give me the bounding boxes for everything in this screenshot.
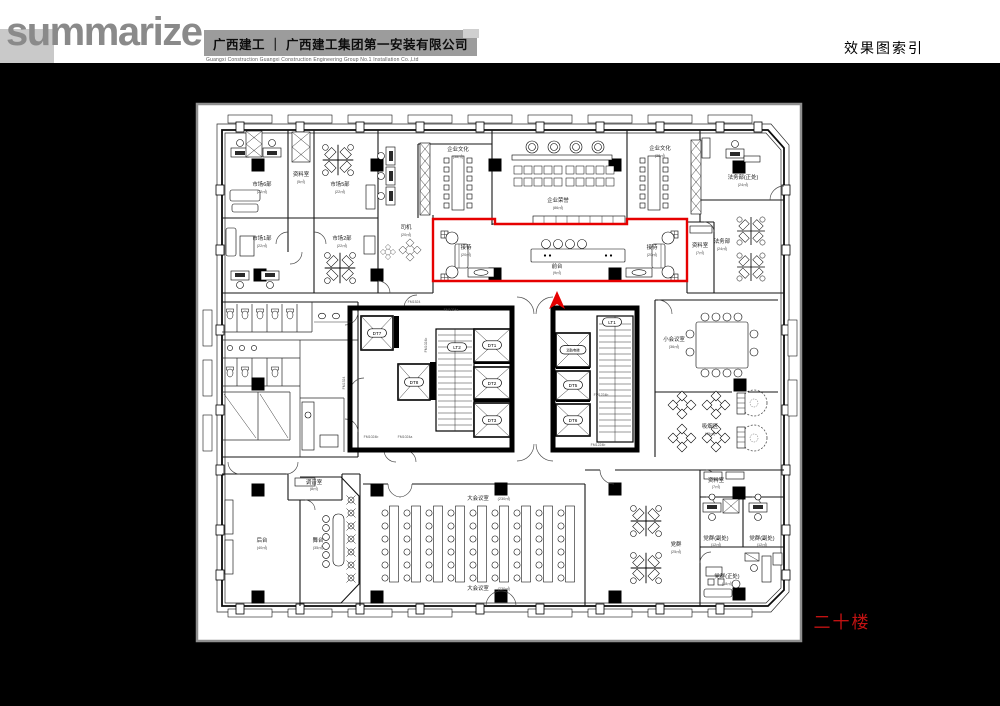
elevator-dt6: DT6 [556,404,590,436]
svg-text:FM1524: FM1524 [408,300,421,304]
svg-text:FM1224b: FM1224b [591,443,606,447]
svg-text:(9㎡): (9㎡) [553,270,562,275]
svg-text:舞台: 舞台 [313,536,324,544]
svg-text:FM1024b: FM1024b [424,338,428,353]
svg-text:(8㎡): (8㎡) [310,486,319,491]
svg-text:资料室: 资料室 [692,241,709,249]
svg-text:DT5: DT5 [569,383,578,388]
svg-text:DT1: DT1 [488,343,497,348]
svg-text:司机: 司机 [401,223,412,231]
elevator-dt8: DT8 [398,364,430,400]
svg-text:消防电梯: 消防电梯 [566,347,580,352]
svg-text:接待: 接待 [647,243,658,251]
svg-text:小会议室: 小会议室 [663,335,685,343]
svg-text:DT6: DT6 [569,418,578,423]
svg-text:法务部: 法务部 [714,237,731,245]
room-label-party: 党群(25㎡) [671,540,682,554]
svg-text:(12㎡): (12㎡) [757,542,768,547]
svg-text:(22㎡): (22㎡) [257,189,268,194]
room-label-reception-left: 接待(20㎡) [461,243,472,257]
svg-text:(45㎡): (45㎡) [705,431,716,436]
svg-text:党群(正处): 党群(正处) [714,572,739,580]
floor-plan-drawing: LT2 LT1 DT7 DT8 DT1 [0,0,1000,706]
room-label-stage: 舞台(35㎡) [313,536,324,550]
svg-text:(18㎡): (18㎡) [722,581,733,586]
svg-text:市场1部: 市场1部 [252,234,272,242]
elevator-dt1: DT1 [474,329,510,362]
furniture-meeting-small [686,313,758,377]
svg-text:(7㎡): (7㎡) [696,250,705,255]
room-label-backstage: 后台(40㎡) [257,536,268,550]
svg-text:(24㎡): (24㎡) [738,182,749,187]
svg-text:资料室: 资料室 [708,476,725,484]
svg-text:(20㎡): (20㎡) [461,252,472,257]
room-label-front-desk: 前台(9㎡) [552,262,563,275]
svg-text:(35㎡): (35㎡) [313,545,324,550]
svg-text:(40㎡): (40㎡) [257,545,268,550]
svg-text:党群(副处): 党群(副处) [749,534,774,542]
svg-text:资料室: 资料室 [293,170,310,178]
svg-text:(12㎡): (12㎡) [711,542,722,547]
svg-text:吸烟区: 吸烟区 [702,422,719,430]
svg-text:(22㎡): (22㎡) [335,189,346,194]
svg-text:(22㎡): (22㎡) [337,243,348,248]
svg-text:企业文化: 企业文化 [649,144,671,152]
svg-text:FM1524: FM1524 [342,377,346,390]
svg-text:(230㎡): (230㎡) [498,496,511,501]
room-label-reception-right: 接待(20㎡) [647,243,658,257]
svg-text:接待: 接待 [461,243,472,251]
svg-text:(86㎡): (86㎡) [553,205,564,210]
svg-text:市场5部: 市场5部 [330,180,350,188]
stair-lt1: LT1 [597,316,633,442]
svg-text:(38㎡): (38㎡) [655,153,666,158]
svg-text:(24㎡): (24㎡) [717,246,728,251]
floor-label: 二十楼 [814,613,871,632]
svg-text:DT2: DT2 [488,381,497,386]
svg-text:FM1024b: FM1024b [364,435,379,439]
svg-text:后台: 后台 [257,536,268,544]
slide-page: summarize 广西建工 ｜ 广西建工集团第一安装有限公司 Guangxi … [0,0,1000,706]
svg-text:市场2部: 市场2部 [332,234,352,242]
svg-text:(5㎡): (5㎡) [297,179,306,184]
svg-text:(36㎡): (36㎡) [669,344,680,349]
svg-text:DT3: DT3 [488,418,497,423]
svg-text:法务部(正处): 法务部(正处) [728,173,759,181]
svg-text:大会议室: 大会议室 [467,584,489,592]
svg-text:FM1024a: FM1024a [444,308,459,312]
svg-text:大会议室: 大会议室 [467,494,489,502]
svg-text:党群: 党群 [671,540,682,548]
elevator-dt5: DT5 [556,371,590,400]
svg-text:(20㎡): (20㎡) [647,252,658,257]
svg-text:党群(副处): 党群(副处) [703,534,728,542]
elevator-dt7: DT7 [361,316,393,350]
svg-text:FM1024a: FM1024a [398,435,413,439]
svg-text:LT2: LT2 [453,345,461,350]
svg-text:LT1: LT1 [608,320,616,325]
svg-text:DT7: DT7 [373,331,382,336]
svg-text:企业文化: 企业文化 [447,145,469,153]
svg-text:企业荣誉: 企业荣誉 [547,196,569,204]
svg-text:(20㎡): (20㎡) [401,232,412,237]
svg-text:调音室: 调音室 [306,478,323,486]
svg-text:前台: 前台 [552,262,563,270]
svg-text:(38㎡): (38㎡) [453,154,464,159]
svg-text:(25㎡): (25㎡) [671,549,682,554]
elevator-fire: 消防电梯 [556,333,590,367]
svg-text:DT8: DT8 [410,380,419,385]
room-label-driver: 司机(20㎡) [401,223,412,237]
stair-lt2: LT2 [436,329,474,431]
svg-text:(22㎡): (22㎡) [257,243,268,248]
svg-text:(230㎡): (230㎡) [498,586,511,591]
elevator-dt2: DT2 [474,367,510,399]
elevator-dt3: DT3 [474,403,510,437]
svg-text:市场6部: 市场6部 [252,180,272,188]
svg-text:FM1224b: FM1224b [594,393,609,397]
svg-text:(7㎡): (7㎡) [712,484,721,489]
